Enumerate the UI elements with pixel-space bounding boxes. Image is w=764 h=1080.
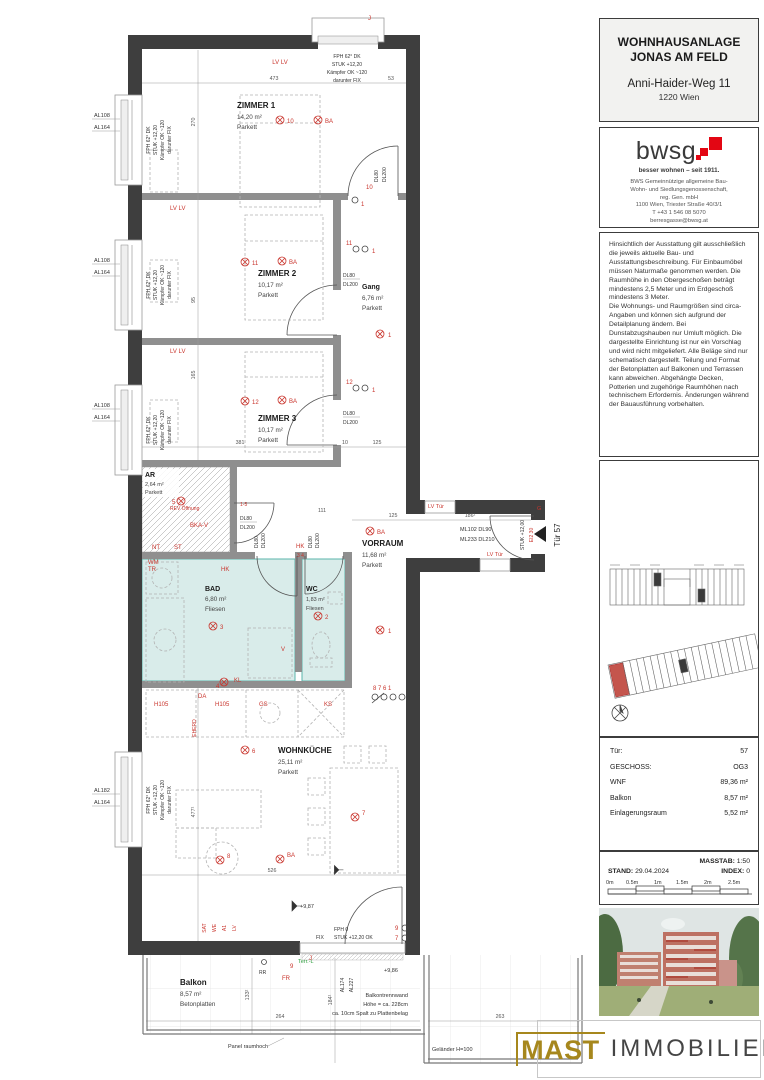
titleblock-header: WOHNHAUSANLAGE JONAS AM FELD Anni-Haider…	[599, 18, 759, 122]
svg-text:DL80: DL80	[343, 411, 355, 417]
svg-text:darunter FIX: darunter FIX	[167, 785, 173, 813]
room-area: 25,11 m²	[278, 759, 302, 766]
svg-text:11: 11	[346, 241, 353, 247]
entrance-door-code: ML102 DL90	[460, 527, 492, 533]
north-compass-icon	[612, 705, 628, 721]
window-spec-z1: FPH 62° DK STUK +12,20 Kämpfer OK ~120 d…	[146, 120, 173, 160]
balcony-glazing	[300, 943, 405, 960]
room-floor: Parkett	[258, 437, 278, 444]
titleblock-siteplan	[599, 460, 759, 737]
svg-text:BA: BA	[377, 530, 385, 536]
bwsg-wordmark: bwsg	[636, 137, 696, 165]
room-name: AR	[145, 472, 155, 479]
row-label: Tür:	[610, 748, 622, 755]
svg-text:270: 270	[191, 118, 197, 127]
svg-text:7: 7	[395, 936, 399, 942]
svg-text:RR: RR	[259, 970, 267, 976]
svg-text:1: 1	[372, 249, 376, 255]
svg-text:125: 125	[389, 513, 398, 519]
svg-text:STUK +12,20 OK: STUK +12,20 OK	[334, 935, 373, 941]
svg-text:DL80: DL80	[240, 516, 252, 522]
svg-text:+9,86: +9,86	[384, 968, 398, 974]
svg-text:53: 53	[388, 76, 394, 82]
svg-text:1: 1	[388, 333, 392, 339]
svg-text:darunter FIX: darunter FIX	[167, 125, 173, 153]
window-spec-z3: FPH 62° DK STUK +12,20 Kämpfer OK ~120 d…	[146, 410, 173, 450]
j-label: J	[368, 16, 371, 22]
svg-text:STUK +12,20: STUK +12,20	[153, 415, 159, 445]
row-value: 5,52 m²	[724, 810, 748, 817]
room-floor: Betonplatten	[180, 1001, 216, 1008]
svg-text:473: 473	[270, 76, 279, 82]
svg-text:8: 8	[227, 854, 231, 860]
window-spec: FPH 62° DK	[333, 54, 361, 60]
svg-text:WM: WM	[148, 560, 159, 566]
bad-floor	[142, 559, 295, 681]
svg-text:Höhe = ca. 228cm: Höhe = ca. 228cm	[363, 1002, 408, 1008]
svg-text:1: 1	[361, 202, 365, 208]
svg-text:GS: GS	[259, 702, 268, 708]
svg-text:AL227: AL227	[349, 978, 355, 993]
row-label: GESCHOSS:	[610, 764, 652, 771]
svg-text:264: 264	[276, 1014, 285, 1020]
row-value: OG3	[733, 764, 748, 771]
entrance-triangle-marker	[534, 526, 546, 542]
svg-text:BA: BA	[289, 399, 297, 405]
svg-text:Kämpfer OK ~120: Kämpfer OK ~120	[160, 120, 166, 160]
svg-text:12: 12	[252, 400, 259, 406]
room-name: ZIMMER 1	[237, 101, 276, 110]
svg-text:V: V	[281, 647, 285, 653]
site-plan-drawing	[600, 461, 758, 736]
svg-text:REV Öffnung: REV Öffnung	[170, 505, 200, 512]
window-spec: darunter FIX	[333, 78, 361, 84]
svg-text:FPH 62° DK: FPH 62° DK	[146, 126, 152, 154]
row-value: 8,57 m²	[724, 795, 748, 802]
svg-text:1-5: 1-5	[240, 502, 247, 508]
wc-floor	[302, 559, 345, 681]
room-floor: Parkett	[258, 292, 278, 299]
window-zimmer3	[115, 385, 142, 475]
room-floor: Parkett	[237, 124, 257, 131]
svg-text:DL200: DL200	[240, 525, 255, 531]
svg-text:AL174: AL174	[340, 978, 346, 993]
immobilien-wordmark: IMMOBILIEN	[611, 1035, 764, 1063]
room-area: 10,17 m²	[258, 427, 283, 434]
room-name: BAD	[205, 586, 220, 593]
row-value: 57	[740, 748, 748, 755]
entry-sidelight-bottom	[480, 559, 510, 571]
svg-text:526: 526	[268, 868, 277, 874]
svg-text:BKA-V: BKA-V	[190, 523, 208, 529]
table-row: Tür:57	[610, 748, 748, 755]
svg-text:KL: KL	[234, 678, 242, 684]
svg-text:WE: WE	[212, 923, 218, 932]
svg-text:381: 381	[236, 440, 245, 446]
svg-text:2.5m: 2.5m	[728, 880, 741, 886]
door-zimmer2	[287, 285, 337, 335]
window-zimmer1	[115, 95, 142, 185]
svg-text:Kämpfer OK ~120: Kämpfer OK ~120	[160, 410, 166, 450]
tuer57-label: Tür 57	[553, 523, 562, 547]
svg-text:1: 1	[372, 388, 376, 394]
svg-text:AL164: AL164	[94, 800, 110, 806]
titleblock-disclaimer: Hinsichtlich der Ausstattung gilt aussch…	[599, 232, 759, 457]
svg-text:1: 1	[388, 629, 392, 635]
room-area: 10,17 m²	[258, 282, 283, 289]
door-size-labels: DL80 DL200 DL80 DL200 DL80 DL200 DL80 DL…	[240, 167, 495, 548]
svg-text:95: 95	[191, 297, 197, 303]
svg-text:10: 10	[287, 119, 294, 125]
room-floor: Fliesen	[306, 606, 324, 612]
svg-text:DL80: DL80	[308, 536, 314, 548]
svg-text:BA: BA	[287, 853, 295, 859]
svg-text:165: 165	[191, 371, 197, 380]
room-floor: Parkett	[362, 562, 382, 569]
svg-text:3 4: 3 4	[297, 553, 304, 559]
svg-text:H105: H105	[215, 702, 230, 708]
svg-text:DL200: DL200	[343, 420, 358, 426]
project-city: 1220 Wien	[600, 92, 758, 102]
lv-label: LV LV	[272, 60, 287, 66]
svg-text:AL108: AL108	[94, 113, 110, 119]
room-floor: Parkett	[145, 490, 163, 496]
svg-text:Kämpfer OK ~120: Kämpfer OK ~120	[160, 780, 166, 820]
svg-text:125: 125	[373, 440, 382, 446]
svg-text:12: 12	[346, 380, 353, 386]
svg-text:9: 9	[395, 926, 399, 932]
svg-text:AL108: AL108	[94, 403, 110, 409]
svg-text:6: 6	[252, 749, 256, 755]
svg-text:AL108: AL108	[94, 258, 110, 264]
bwsg-tagline: besser wohnen – seit 1911.	[600, 167, 758, 174]
mast-immobilien-logo: MAST IMMOBILIEN	[537, 1020, 761, 1078]
svg-text:DL80: DL80	[374, 170, 380, 182]
table-row: Einlagerungsraum5,52 m²	[610, 810, 748, 817]
g-label: G	[537, 506, 541, 512]
bwsg-company-info: BWS Gemeinnützige allgemeine Bau- Wohn- …	[600, 179, 758, 226]
svg-text:FR: FR	[282, 976, 291, 982]
svg-text:DL200: DL200	[382, 167, 388, 182]
svg-text:BA: BA	[289, 260, 297, 266]
fire-rating-label: EI2 30	[529, 528, 535, 543]
mast-wordmark: MAST	[516, 1032, 605, 1066]
svg-text:7: 7	[362, 811, 366, 817]
svg-text:8 7 6 1: 8 7 6 1	[373, 686, 392, 692]
svg-text:2m: 2m	[704, 880, 712, 886]
room-area: 11,68 m²	[362, 552, 386, 559]
row-label: WNF	[610, 779, 626, 786]
svg-text:DA: DA	[198, 694, 206, 700]
disclaimer-paragraph-1: Hinsichtlich der Ausstattung gilt aussch…	[609, 241, 749, 303]
svg-text:11: 11	[252, 261, 259, 267]
stuk-label: STUK +12,00	[520, 520, 526, 550]
room-area: 8,57 m²	[180, 991, 201, 998]
room-name: WC	[306, 586, 318, 593]
lv-label: LV LV	[170, 206, 185, 212]
svg-text:HK: HK	[296, 544, 304, 550]
table-row: Balkon8,57 m²	[610, 795, 748, 802]
room-floor: Fliesen	[205, 606, 226, 613]
svg-text:A1: A1	[222, 925, 228, 931]
svg-text:186¹: 186¹	[465, 513, 476, 519]
window-spec: STUK +12,20	[332, 62, 362, 68]
svg-text:FIX: FIX	[316, 935, 324, 941]
svg-text:133²: 133²	[245, 989, 251, 1000]
lv-tuer-label: LV Tür	[487, 552, 503, 558]
svg-text:DL200: DL200	[261, 533, 267, 548]
siteplan-building-lower	[608, 634, 758, 698]
svg-text:KS: KS	[324, 702, 332, 708]
titleblock-bwsg: bwsg besser wohnen – seit 1911. BWS Geme…	[599, 127, 759, 228]
index: INDEX: 0	[721, 868, 750, 875]
svg-text:DL200: DL200	[343, 282, 358, 288]
floor-plan-drawing: ZIMMER 1 14,20 m² Parkett ZIMMER 2 10,17…	[0, 0, 600, 1080]
svg-text:FPH 62° DK: FPH 62° DK	[146, 786, 152, 814]
svg-text:111: 111	[318, 508, 326, 514]
svg-text:AL164: AL164	[94, 415, 110, 421]
building-render-image	[599, 908, 759, 1016]
svg-text:darunter FIX: darunter FIX	[167, 415, 173, 443]
svg-text:+9,87: +9,87	[300, 904, 314, 910]
window-spec: Kämpfer OK ~120	[327, 70, 367, 76]
svg-text:NT: NT	[152, 545, 160, 551]
svg-text:DL80: DL80	[343, 273, 355, 279]
svg-text:DL80: DL80	[254, 536, 260, 548]
bwsg-logo: bwsg	[636, 137, 722, 166]
svg-text:H105: H105	[154, 702, 169, 708]
svg-text:SAT: SAT	[202, 923, 208, 932]
room-name: ZIMMER 3	[258, 414, 297, 423]
svg-text:STUK +12,20: STUK +12,20	[153, 785, 159, 815]
window-zimmer2	[115, 240, 142, 330]
svg-text:1m: 1m	[654, 880, 662, 886]
window-spec-z2: FPH 62° DK STUK +12,20 Kämpfer OK ~120 d…	[146, 265, 173, 305]
svg-text:HK: HK	[221, 567, 229, 573]
room-floor: Parkett	[278, 769, 298, 776]
scale-bar: 0m 0.5m 1m 1.5m 2m 2.5m	[604, 878, 756, 898]
svg-text:10: 10	[366, 185, 373, 191]
svg-text:10: 10	[342, 440, 348, 446]
svg-text:TR: TR	[148, 567, 157, 573]
table-row: WNF89,36 m²	[610, 779, 748, 786]
window-wohnkueche	[115, 752, 142, 847]
svg-text:0m: 0m	[606, 880, 614, 886]
masstab: MASSTAB: 1:50	[700, 858, 751, 865]
svg-text:LV: LV	[232, 924, 238, 930]
entrance-door-code: ML233 DL210	[460, 537, 495, 543]
row-label: Balkon	[610, 795, 631, 802]
svg-text:ca. 10cm Spalt zu Plattenbelag: ca. 10cm Spalt zu Plattenbelag	[332, 1011, 408, 1017]
room-name: WOHNKÜCHE	[278, 746, 332, 755]
svg-text:ST: ST	[174, 545, 182, 551]
svg-text:1.5m: 1.5m	[676, 880, 689, 886]
window-top	[312, 18, 384, 44]
svg-text:darunter FIX: darunter FIX	[167, 270, 173, 298]
room-area: 2,64 m²	[145, 482, 164, 488]
svg-text:STUK +12,20: STUK +12,20	[153, 270, 159, 300]
room-name: ZIMMER 2	[258, 269, 297, 278]
svg-text:477¹: 477¹	[191, 806, 197, 817]
room-area: 14,20 m²	[237, 114, 262, 121]
svg-text:FPH 62° DK: FPH 62° DK	[146, 271, 152, 299]
svg-text:FPH 62° DK: FPH 62° DK	[146, 416, 152, 444]
table-row: GESCHOSS:OG3	[610, 764, 748, 771]
svg-text:BA: BA	[325, 119, 333, 125]
room-floor: Parkett	[362, 305, 382, 312]
svg-text:J: J	[309, 956, 312, 962]
svg-text:Balkontrennwand: Balkontrennwand	[365, 993, 408, 999]
svg-text:EHERD: EHERD	[192, 719, 198, 737]
svg-text:Geländer H=100: Geländer H=100	[432, 1047, 473, 1053]
room-name: Gang	[362, 284, 380, 291]
svg-text:AL164: AL164	[94, 270, 110, 276]
svg-text:263: 263	[496, 1014, 505, 1020]
svg-text:Kämpfer OK ~120: Kämpfer OK ~120	[160, 265, 166, 305]
svg-text:AL164: AL164	[94, 125, 110, 131]
row-label: Einlagerungsraum	[610, 810, 667, 817]
bwsg-squares-icon	[696, 137, 722, 163]
floorplan-sheet: ZIMMER 1 14,20 m² Parkett ZIMMER 2 10,17…	[0, 0, 764, 1080]
disclaimer-paragraph-2: Die Wohnungs- und Raumgrößen sind circa-…	[609, 303, 749, 410]
svg-text:Panel raumhoch: Panel raumhoch	[228, 1044, 268, 1050]
room-area: 6,76 m²	[362, 295, 383, 302]
room-area: 6,80 m²	[205, 596, 226, 603]
room-name: Balkon	[180, 978, 207, 987]
svg-text:STUK +12,20: STUK +12,20	[153, 125, 159, 155]
room-name: VORRAUM	[362, 539, 404, 548]
svg-text:AL182: AL182	[94, 788, 110, 794]
siteplan-building-upper	[610, 565, 744, 605]
window-spec-wk: FPH 62° DK STUK +12,20 Kämpfer OK ~120 d…	[146, 780, 173, 820]
svg-text:DL200: DL200	[315, 533, 321, 548]
dimension-values: 473 53 270 95 165 381 10 125 125 186¹ 11…	[191, 76, 504, 1020]
svg-text:184¹: 184¹	[328, 994, 334, 1005]
svg-text:0.5m: 0.5m	[626, 880, 639, 886]
project-address: Anni-Haider-Weg 11	[600, 78, 758, 90]
door-zimmer1	[348, 146, 398, 196]
room-area: 1,83 m²	[306, 597, 325, 603]
electric-symbols	[177, 0, 600, 965]
stand: STAND: 29.04.2024	[608, 868, 669, 875]
svg-text:FPH 0: FPH 0	[334, 927, 348, 933]
lv-tuer-label: LV Tür	[428, 504, 444, 510]
titleblock-meta: MASSTAB: 1:50 STAND: 29.04.2024INDEX: 0 …	[599, 851, 759, 905]
row-value: 89,36 m²	[720, 779, 748, 786]
titleblock-info-table: Tür:57 GESCHOSS:OG3 WNF89,36 m² Balkon8,…	[599, 737, 759, 851]
lv-label: LV LV	[170, 349, 185, 355]
project-title: WOHNHAUSANLAGE JONAS AM FELD	[600, 35, 758, 65]
